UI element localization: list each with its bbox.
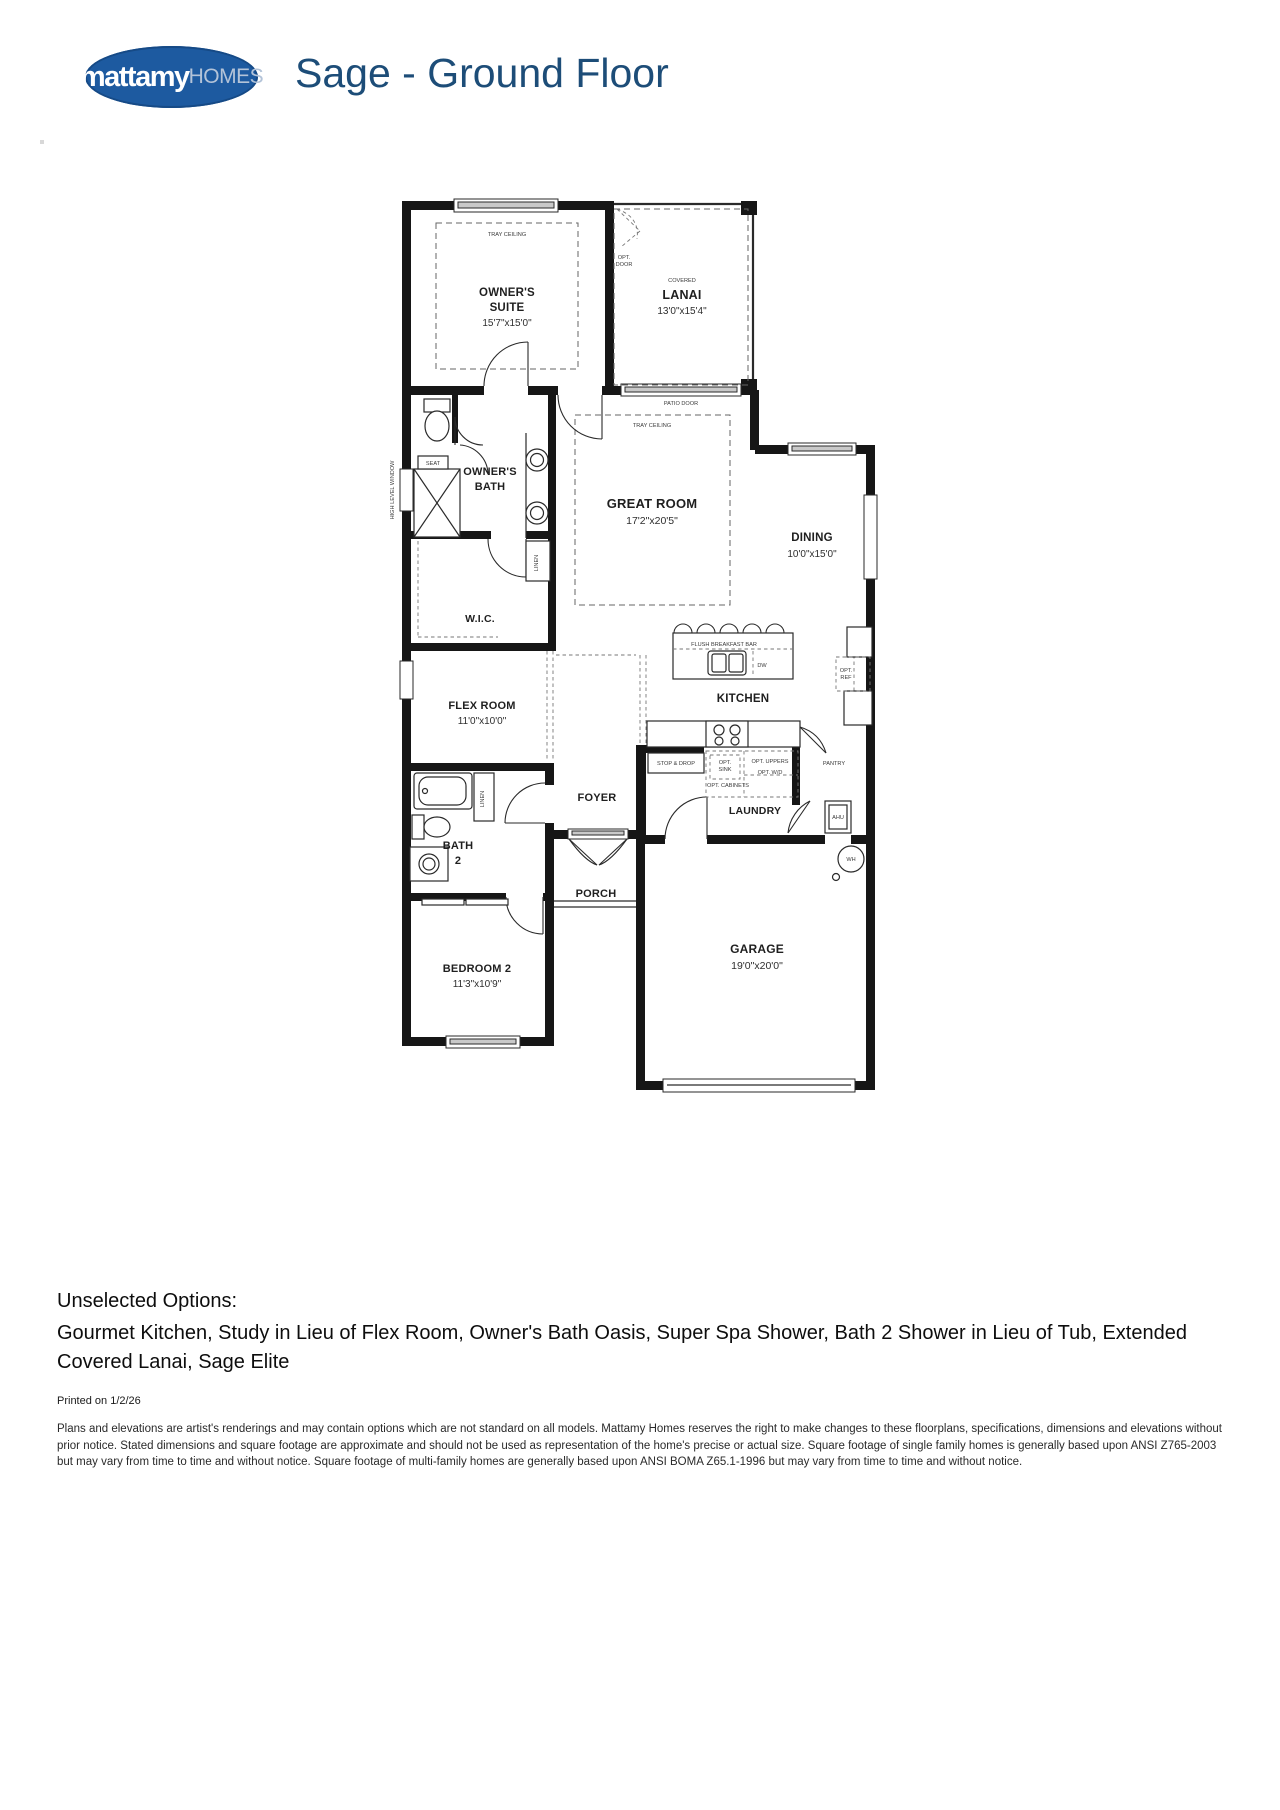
label-tray-ceiling-great: TRAY CEILING [633,423,671,429]
svg-text:REF: REF [840,675,852,681]
label-flush-breakfast-bar: FLUSH BREAKFAST BAR [691,642,757,648]
label-opt-ref: OPT. [840,668,853,674]
mattamy-homes-logo: mattamyHOMES [85,46,258,108]
label-opt-uppers: OPT. UPPERS [752,759,789,765]
walls [402,201,875,1090]
label-ahu: AHU [832,815,844,821]
room-garage: GARAGE [730,942,784,956]
room-pantry: PANTRY [823,761,845,767]
label-covered: COVERED [668,278,696,284]
page-title: Sage - Ground Floor [295,50,669,97]
dims-dining: 10'0"x15'0" [787,549,837,560]
label-linen-wic: LINEN [534,555,540,571]
cooktop-counter [647,721,800,747]
room-owners-suite: OWNER'S [479,287,535,299]
printed-date: Printed on 1/2/26 [57,1395,1223,1407]
dims-lanai: 13'0"x15'4" [657,306,707,317]
svg-text:SUITE: SUITE [490,302,525,314]
svg-text:BATH: BATH [475,481,506,493]
toilet-owners-bath [424,399,450,441]
room-dining: DINING [791,532,832,544]
dims-bedroom2: 11'3"x10'9" [453,979,502,990]
room-flex: FLEX ROOM [448,700,515,712]
kitchen-island [673,624,793,679]
water-heater [833,846,865,881]
dims-owners-suite: 15'7"x15'0" [482,318,532,329]
label-patio-door: PATIO DOOR [664,401,698,407]
room-porch: PORCH [576,888,617,900]
room-laundry: LAUNDRY [729,805,781,817]
room-lanai: LANAI [662,288,701,302]
legal-disclaimer: Plans and elevations are artist's render… [57,1421,1223,1471]
label-wh: WH [846,857,855,863]
room-bath2: BATH [443,840,474,852]
toilet-bath2 [412,815,450,839]
label-dw: DW [757,663,767,669]
label-opt-wd: OPT. W/D [758,770,783,776]
shower-owners-bath [414,456,460,537]
room-owners-bath: OWNER'S [463,466,517,478]
label-opt-door: OPT. [618,255,631,261]
logo-text-primary: mattamy [80,61,189,94]
label-linen-bath2: LINEN [480,791,486,807]
room-bedroom2: BEDROOM 2 [443,963,511,975]
label-seat: SEAT [426,461,441,467]
svg-text:SINK: SINK [718,767,731,773]
label-tray-ceiling-suite: TRAY CEILING [488,232,526,238]
vanity-owners-bath [526,433,548,538]
label-opt-cabinets: OPT. CABINETS [707,783,749,789]
room-great-room: GREAT ROOM [607,496,698,511]
unselected-options-title: Unselected Options: [57,1290,1223,1313]
label-high-level-window: HIGH LEVEL WINDOW [390,460,396,520]
room-labels: TRAY CEILING OWNER'S SUITE 15'7"x15'0" O… [390,232,856,990]
room-foyer: FOYER [578,792,617,804]
floorplan-drawing: TRAY CEILING OWNER'S SUITE 15'7"x15'0" O… [388,193,888,1098]
sink-bath2 [410,847,448,881]
label-opt-sink: OPT. [719,760,732,766]
dims-garage: 19'0"x20'0" [731,960,783,972]
svg-text:DOOR: DOOR [616,262,633,268]
bathtub-bath2 [414,773,472,809]
print-artifact [40,140,44,144]
dims-great-room: 17'2"x20'5" [626,515,678,527]
laundry-opt-boxes [706,751,798,797]
room-wic: W.I.C. [465,613,495,625]
label-stop-drop: STOP & DROP [657,761,695,767]
dims-flex: 11'0"x10'0" [458,716,507,727]
unselected-options-list: Gourmet Kitchen, Study in Lieu of Flex R… [57,1319,1223,1377]
room-kitchen: KITCHEN [717,693,770,705]
svg-text:2: 2 [455,855,461,867]
floorplan-page: mattamyHOMES Sage - Ground Floor [0,0,1280,1810]
footer: Unselected Options: Gourmet Kitchen, Stu… [57,1290,1223,1471]
logo-text-secondary: HOMES [189,65,264,89]
